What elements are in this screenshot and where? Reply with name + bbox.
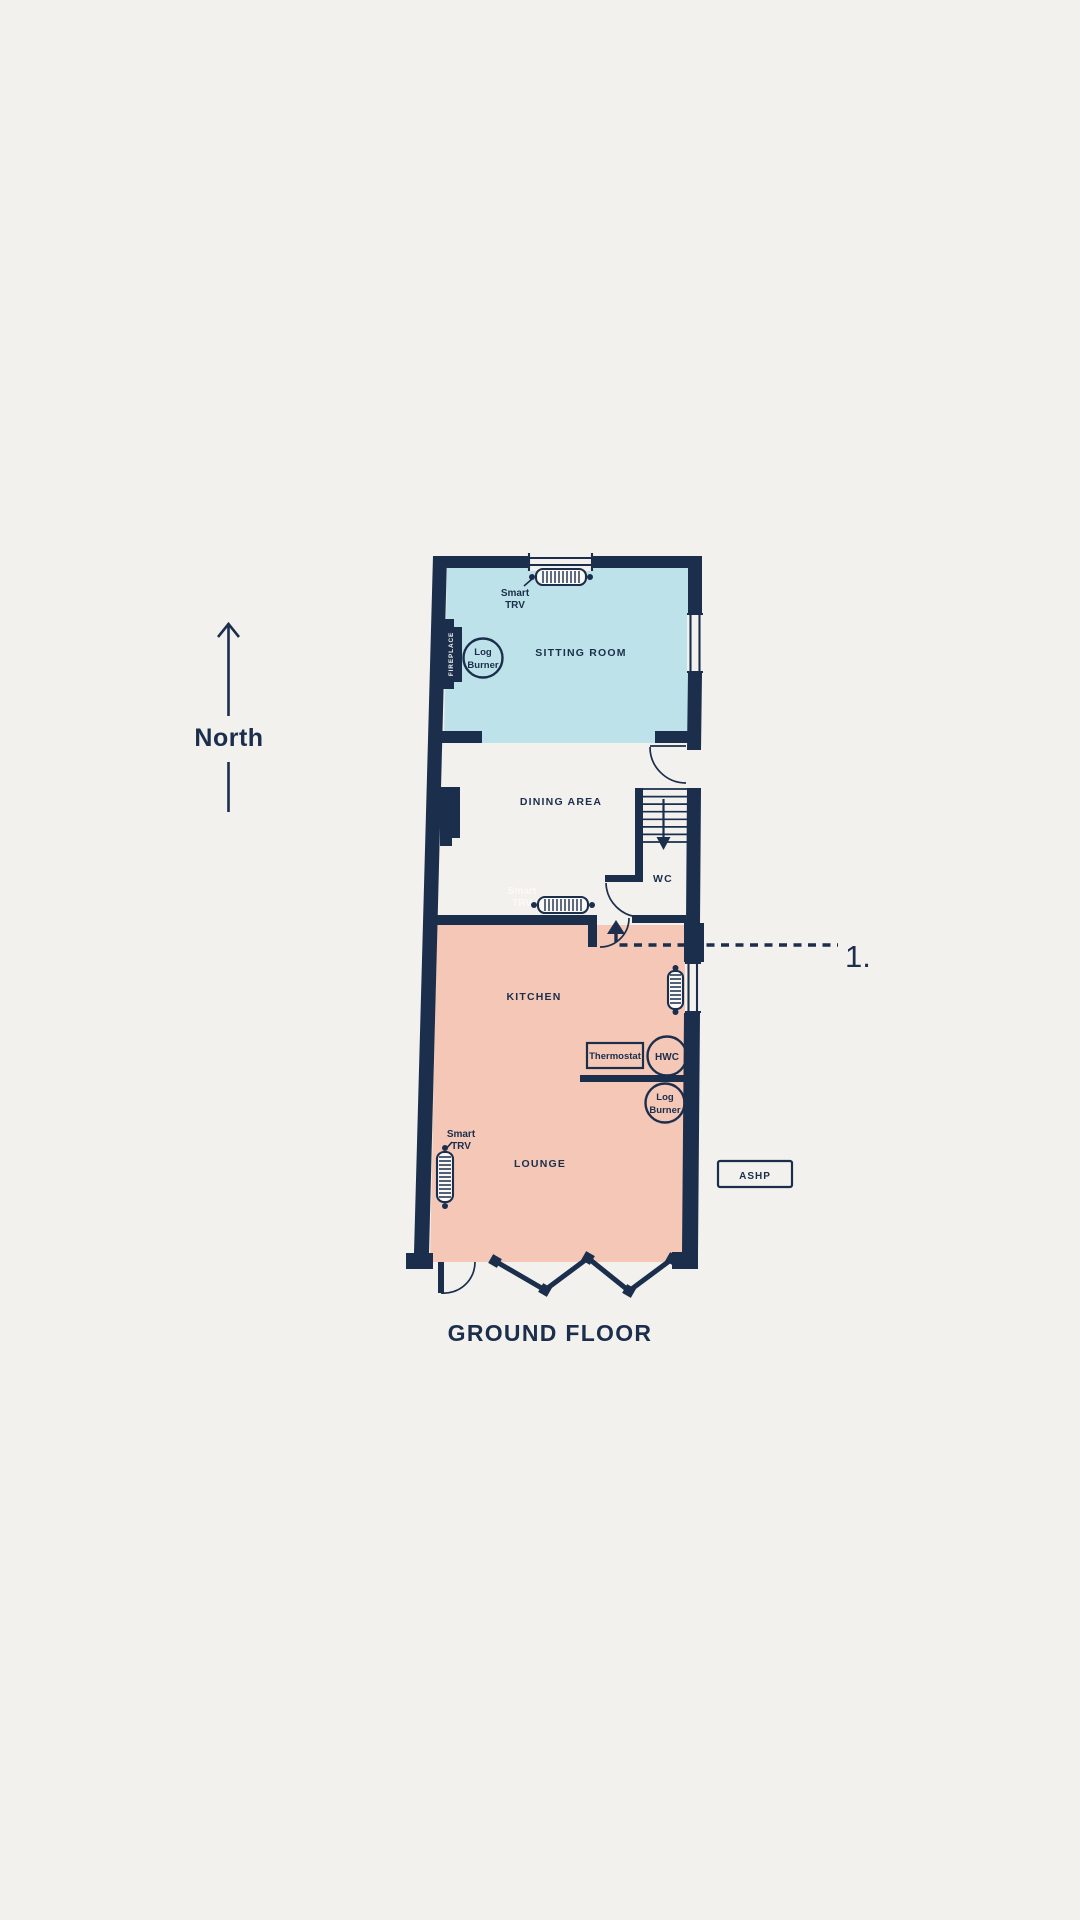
lounge-door-leaf [438,1262,444,1293]
wall-kitchen-door-stub [588,915,597,947]
dining-chimney-breast [440,787,460,846]
radiator-valve [442,1203,448,1209]
wall-east-d [684,923,704,962]
wall-dining-kitchen-left [436,915,597,925]
wc-door-swing-arc [606,883,641,917]
hwc-label: HWC [655,1052,679,1063]
stairs [635,788,687,882]
smart-trv-label-sitting: Smart [501,588,530,599]
wall-east-c [686,788,701,923]
wall-top-right [593,556,702,568]
callout-1-label: 1. [845,939,871,974]
radiator-valve [589,902,595,908]
smart-trv-label-dining: Smart [508,886,537,897]
thermostat-label: Thermostat [589,1051,642,1062]
wall-dining-kitchen-right [632,915,686,923]
log-burner-label: Burner [649,1105,680,1116]
front-door [650,746,686,783]
wall-west-foot [406,1253,433,1269]
log-burner-label: Log [474,647,492,658]
floor-plan-page: North FIREPLACE [0,0,1080,1920]
wall-sitting-dining-left [441,731,482,743]
log-burner-label: Log [656,1092,674,1103]
wall-top-left [433,556,528,568]
lounge-door [438,1262,475,1293]
front-door-swing-arc [650,747,686,783]
wc-label: WC [653,873,673,885]
stairs-side-wall [635,788,643,882]
log-burner-label: Burner [467,660,498,671]
smart-trv-label-lounge: TRV [451,1141,471,1152]
radiator-valve [587,574,593,580]
radiator-dining-area [531,897,595,913]
wall-east-a [688,568,702,613]
dining-area-label: DINING AREA [520,796,602,808]
wc-door-leaf [605,875,641,882]
fireplace-label: FIREPLACE [448,632,455,676]
north-arrow: North [194,624,263,812]
floor-plan-drawing: North FIREPLACE [0,0,1080,1920]
stairs-treads [643,789,687,842]
window-east-kitchen [685,962,701,1013]
north-label: North [194,724,263,752]
smart-trv-label-dining: TRV [512,898,532,909]
bay-window-glazing [495,1258,672,1291]
page-title: GROUND FLOOR [448,1320,653,1346]
lounge-door-swing-arc [441,1262,475,1293]
smart-trv-label-sitting: TRV [505,600,525,611]
ashp-label: ASHP [739,1171,771,1182]
radiator-kitchen [668,965,683,1015]
wall-east-b [687,673,702,750]
stairs-down-arrow-head-icon [657,837,671,850]
smart-trv-label-lounge: Smart [447,1129,476,1140]
sitting-room-label: SITTING ROOM [535,647,626,659]
wall-sitting-dining-right [655,731,688,743]
kitchen-label: KITCHEN [506,991,561,1003]
lounge-label: LOUNGE [514,1158,566,1170]
wc-door [605,875,641,917]
window-east-sitting-room [687,613,703,673]
